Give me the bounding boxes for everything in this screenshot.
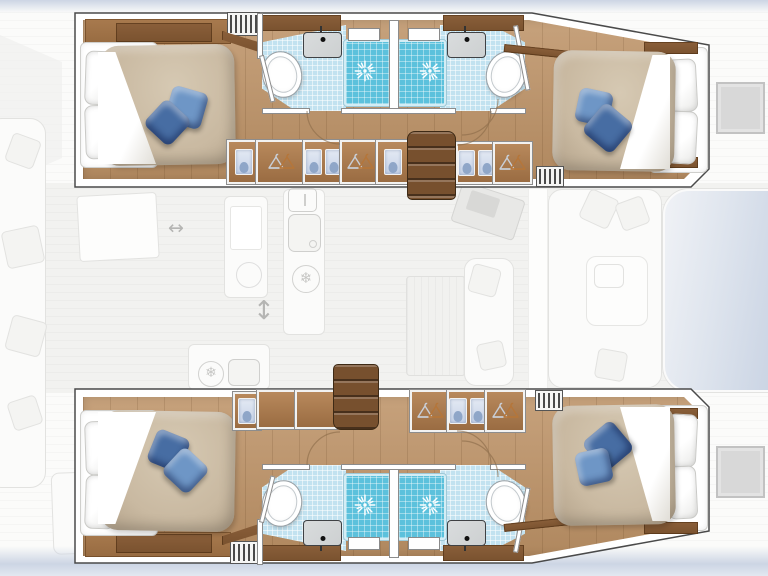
coachroof bbox=[663, 189, 768, 392]
wardrobe-shirt-shelf bbox=[303, 140, 344, 184]
corridor-wall bbox=[341, 464, 456, 470]
lounge-cushion bbox=[594, 348, 629, 383]
sliding-door-arrow-v: ↕ bbox=[253, 298, 275, 324]
shirt-icon bbox=[458, 150, 475, 176]
corridor-wall bbox=[490, 464, 526, 470]
wardrobe-hanger-locker bbox=[485, 390, 525, 432]
cabin-wall bbox=[257, 519, 263, 565]
cabinet-shelf bbox=[116, 534, 212, 553]
wardrobe-shirt-shelf bbox=[447, 390, 489, 432]
fridge-snowflake-icon: ❄ bbox=[292, 265, 320, 293]
bathroom-divider-wall bbox=[389, 464, 399, 558]
galley-worktop bbox=[230, 206, 262, 250]
cabinet-shelf bbox=[116, 23, 212, 42]
vanity-cabinet bbox=[259, 545, 341, 561]
wardrobe-hanger-locker bbox=[256, 140, 307, 184]
blue-throw-pillow bbox=[574, 447, 614, 487]
bathroom-window bbox=[348, 537, 380, 550]
shower-cabin bbox=[344, 474, 393, 540]
sofa-cushion bbox=[475, 339, 507, 371]
bow-deck-hatch bbox=[716, 82, 765, 134]
bow-deck-hatch bbox=[716, 446, 765, 498]
sink-basin bbox=[447, 32, 486, 58]
burner-icon bbox=[236, 262, 262, 288]
vanity-cabinet bbox=[443, 15, 524, 31]
hanger-icon bbox=[501, 402, 521, 420]
dining-table bbox=[406, 276, 466, 376]
shirt-icon bbox=[238, 398, 256, 424]
shower-cabin bbox=[397, 474, 446, 540]
louver-vent bbox=[535, 390, 563, 411]
bathroom-window bbox=[408, 28, 440, 41]
wardrobe-hanger-locker bbox=[410, 390, 451, 432]
cockpit-table bbox=[76, 192, 159, 262]
wardrobe-shirt-shelf bbox=[376, 140, 409, 184]
shirt-icon bbox=[305, 149, 322, 175]
fridge-snowflake-icon: ❄ bbox=[198, 361, 224, 387]
sink-basin bbox=[303, 32, 342, 58]
bathroom-window bbox=[408, 537, 440, 550]
shirt-icon bbox=[235, 149, 253, 175]
hanger-icon bbox=[508, 154, 528, 172]
shower-cabin bbox=[344, 40, 393, 106]
sink-basin bbox=[447, 520, 486, 546]
bathroom-window bbox=[348, 28, 380, 41]
cockpit-cushion bbox=[0, 224, 45, 269]
sink-drain-icon bbox=[309, 240, 317, 248]
louver-vent bbox=[227, 12, 260, 36]
wardrobe-cabinet bbox=[257, 390, 299, 429]
hanger-icon bbox=[356, 153, 376, 171]
vanity-cabinet bbox=[443, 545, 524, 561]
catamaran-floorplan: ❄ ↔ ↕ ❄ bbox=[0, 0, 768, 576]
companionway-stairs bbox=[407, 131, 456, 200]
hanger-icon bbox=[277, 153, 297, 171]
wardrobe-shirt-shelf bbox=[456, 142, 497, 184]
cabin-wall bbox=[257, 13, 263, 59]
lounge-table-inset bbox=[594, 264, 624, 288]
cockpit-bench bbox=[0, 118, 46, 488]
wardrobe-cabinet bbox=[295, 390, 337, 429]
companionway-stairs bbox=[333, 364, 379, 430]
corridor-wall bbox=[341, 108, 456, 114]
side-walkway bbox=[528, 188, 548, 390]
corridor-wall bbox=[262, 464, 310, 470]
bathroom-divider-wall bbox=[389, 20, 399, 114]
sink-basin bbox=[303, 520, 342, 546]
sliding-door-arrow-h: ↔ bbox=[168, 219, 184, 238]
shirt-icon bbox=[449, 398, 467, 424]
wardrobe-hanger-locker bbox=[340, 140, 380, 184]
sky-band bbox=[0, 0, 768, 13]
cutlery-icon bbox=[288, 188, 317, 212]
vanity-cabinet bbox=[259, 15, 341, 31]
shower-cabin bbox=[397, 40, 446, 106]
shirt-icon bbox=[384, 149, 402, 175]
hanger-icon bbox=[426, 402, 446, 420]
corridor-wall bbox=[262, 108, 310, 114]
wardrobe-hanger-locker bbox=[493, 142, 532, 184]
corridor-wall bbox=[490, 108, 526, 114]
louver-vent bbox=[536, 166, 564, 187]
galley-sink-icon bbox=[228, 359, 260, 386]
